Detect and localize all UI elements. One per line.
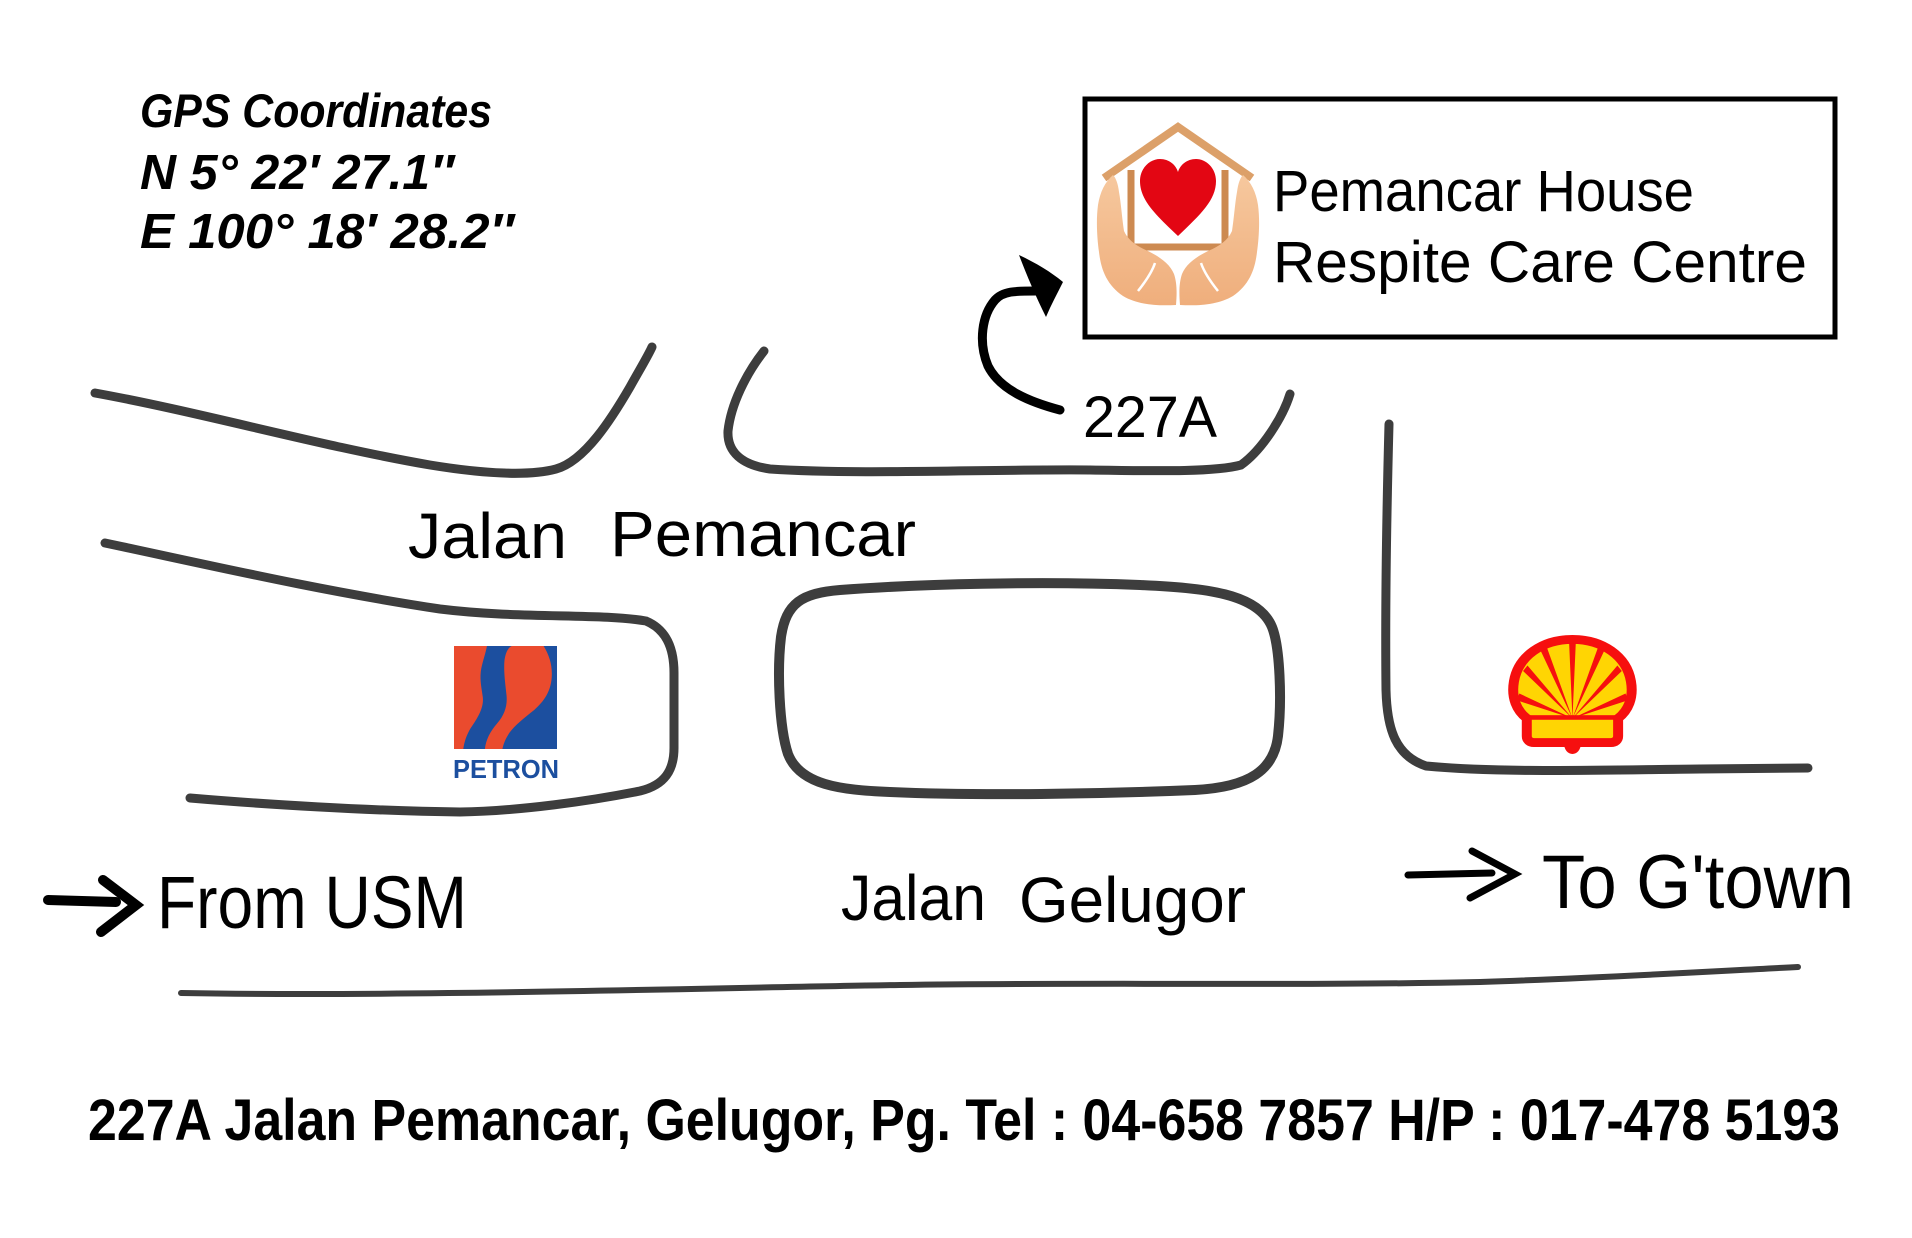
svg-text:Respite Care Centre: Respite Care Centre bbox=[1273, 230, 1807, 295]
svg-text:227A Jalan Pemancar, Gelugor,: 227A Jalan Pemancar, Gelugor, Pg. Tel : … bbox=[88, 1088, 1840, 1153]
svg-text:To G'town: To G'town bbox=[1542, 840, 1854, 925]
svg-text:GPS Coordinates: GPS Coordinates bbox=[140, 84, 492, 137]
svg-text:N 5° 22′ 27.1″: N 5° 22′ 27.1″ bbox=[140, 146, 457, 200]
svg-text:Pemancar: Pemancar bbox=[610, 498, 916, 570]
svg-text:Gelugor: Gelugor bbox=[1019, 864, 1246, 936]
svg-text:Pemancar House: Pemancar House bbox=[1273, 159, 1694, 224]
svg-text:From USM: From USM bbox=[157, 861, 467, 944]
svg-text:227A: 227A bbox=[1083, 385, 1217, 450]
svg-text:E 100° 18′ 28.2″: E 100° 18′ 28.2″ bbox=[140, 205, 517, 259]
svg-text:Jalan: Jalan bbox=[408, 500, 567, 572]
svg-text:Jalan: Jalan bbox=[841, 862, 986, 934]
svg-text:PETRON: PETRON bbox=[453, 754, 559, 784]
